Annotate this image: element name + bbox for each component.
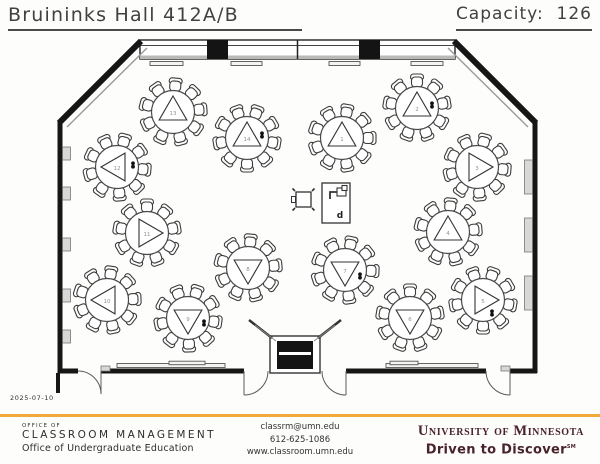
chair-icon [103, 265, 118, 280]
service-mark: SM [567, 444, 576, 450]
table-number: 9 [186, 317, 190, 323]
plan-date: 2025-07-10 [10, 394, 54, 402]
table-number: 12 [114, 166, 121, 172]
left-wall [58, 121, 71, 393]
table-4: 4 [413, 198, 482, 267]
chair-icon [182, 339, 195, 352]
table-7: 7 [311, 235, 380, 304]
chair-icon [472, 187, 486, 201]
vestibule [249, 320, 341, 373]
chair-icon [411, 74, 424, 87]
table-number: 3 [475, 166, 479, 172]
table-number: 5 [481, 299, 485, 305]
classroom-management-label: CLASSROOM MANAGEMENT [22, 429, 216, 442]
table-6: 6 [375, 284, 444, 352]
podium-label: d [337, 211, 343, 221]
table-number: 1 [340, 137, 344, 143]
contact-email: classrm@umn.edu [230, 421, 370, 434]
table-number: 4 [446, 231, 450, 237]
door-left [244, 371, 268, 395]
door-right-corner [486, 371, 510, 395]
capacity-label: Capacity: 126 [456, 4, 592, 31]
table-12: 12 [82, 132, 151, 201]
chair-icon [497, 162, 511, 176]
right-wall [525, 121, 536, 373]
table-number: 11 [144, 232, 151, 238]
undergrad-education-label: Office of Undergraduate Education [22, 442, 216, 455]
stool-icon [292, 189, 315, 211]
chair-icon [128, 292, 141, 305]
chair-icon [208, 314, 223, 329]
chair-icon [141, 199, 154, 212]
table-14: 14 [212, 104, 281, 172]
column [207, 40, 228, 59]
table-13: 13 [138, 78, 207, 147]
table-number: 10 [104, 299, 111, 305]
tables-layer: 1234567891011121314 [73, 74, 518, 352]
chair-icon [341, 290, 356, 305]
chair-icon [477, 321, 490, 334]
chair-icon [468, 223, 482, 237]
room-title: Bruininks Hall 412A/B [8, 4, 302, 31]
chair-icon [268, 259, 282, 273]
whiteboards-top [150, 62, 443, 66]
chair-icon [168, 78, 182, 92]
table-2: 2 [382, 74, 451, 142]
table-number: 2 [415, 107, 419, 113]
table-9: 9 [153, 284, 222, 353]
table-11: 11 [112, 199, 181, 267]
chair-icon [443, 198, 457, 212]
chair-icon [243, 234, 257, 248]
table-5: 5 [448, 266, 517, 334]
contact-phone: 612-625-1086 [230, 434, 370, 447]
table-10: 10 [73, 265, 142, 334]
chair-icon [366, 264, 379, 277]
footer-office-block: OFFICE OF CLASSROOM MANAGEMENT Office of… [22, 424, 216, 455]
chair-icon [404, 284, 417, 297]
table-number: 7 [343, 269, 347, 275]
table-number: 14 [244, 137, 251, 143]
footer: OFFICE OF CLASSROOM MANAGEMENT Office of… [0, 414, 600, 464]
footer-contact-block: classrm@umn.edu 612-625-1086 www.classro… [230, 421, 370, 459]
instructor-station: d [292, 183, 351, 223]
table-number: 6 [408, 317, 412, 323]
footer-umn-block: University of Minnesota Driven to Discov… [418, 423, 584, 458]
table-number: 13 [170, 111, 177, 117]
umn-tagline: Driven to DiscoverSM [418, 439, 584, 458]
podium-icon: d [322, 183, 350, 223]
chair-icon [193, 103, 207, 117]
door-left-corner [78, 371, 101, 394]
doors [78, 371, 510, 395]
umn-wordmark: University of Minnesota [418, 423, 584, 439]
chair-icon [137, 162, 151, 176]
chair-icon [112, 187, 126, 201]
table-8: 8 [213, 234, 282, 303]
top-wall [140, 40, 455, 59]
table-3: 3 [442, 132, 511, 201]
contact-website: www.classroom.umn.edu [230, 446, 370, 459]
chair-icon [241, 159, 254, 172]
capacity-text: Capacity: [456, 4, 544, 24]
door-right-of-vestibule [322, 371, 346, 395]
table-number: 8 [246, 267, 250, 273]
table-1: 1 [308, 103, 376, 172]
floor-plan: d 1234567891011121314 [0, 0, 600, 412]
column [359, 40, 380, 59]
chair-icon [363, 132, 376, 145]
capacity-value: 126 [557, 4, 592, 24]
